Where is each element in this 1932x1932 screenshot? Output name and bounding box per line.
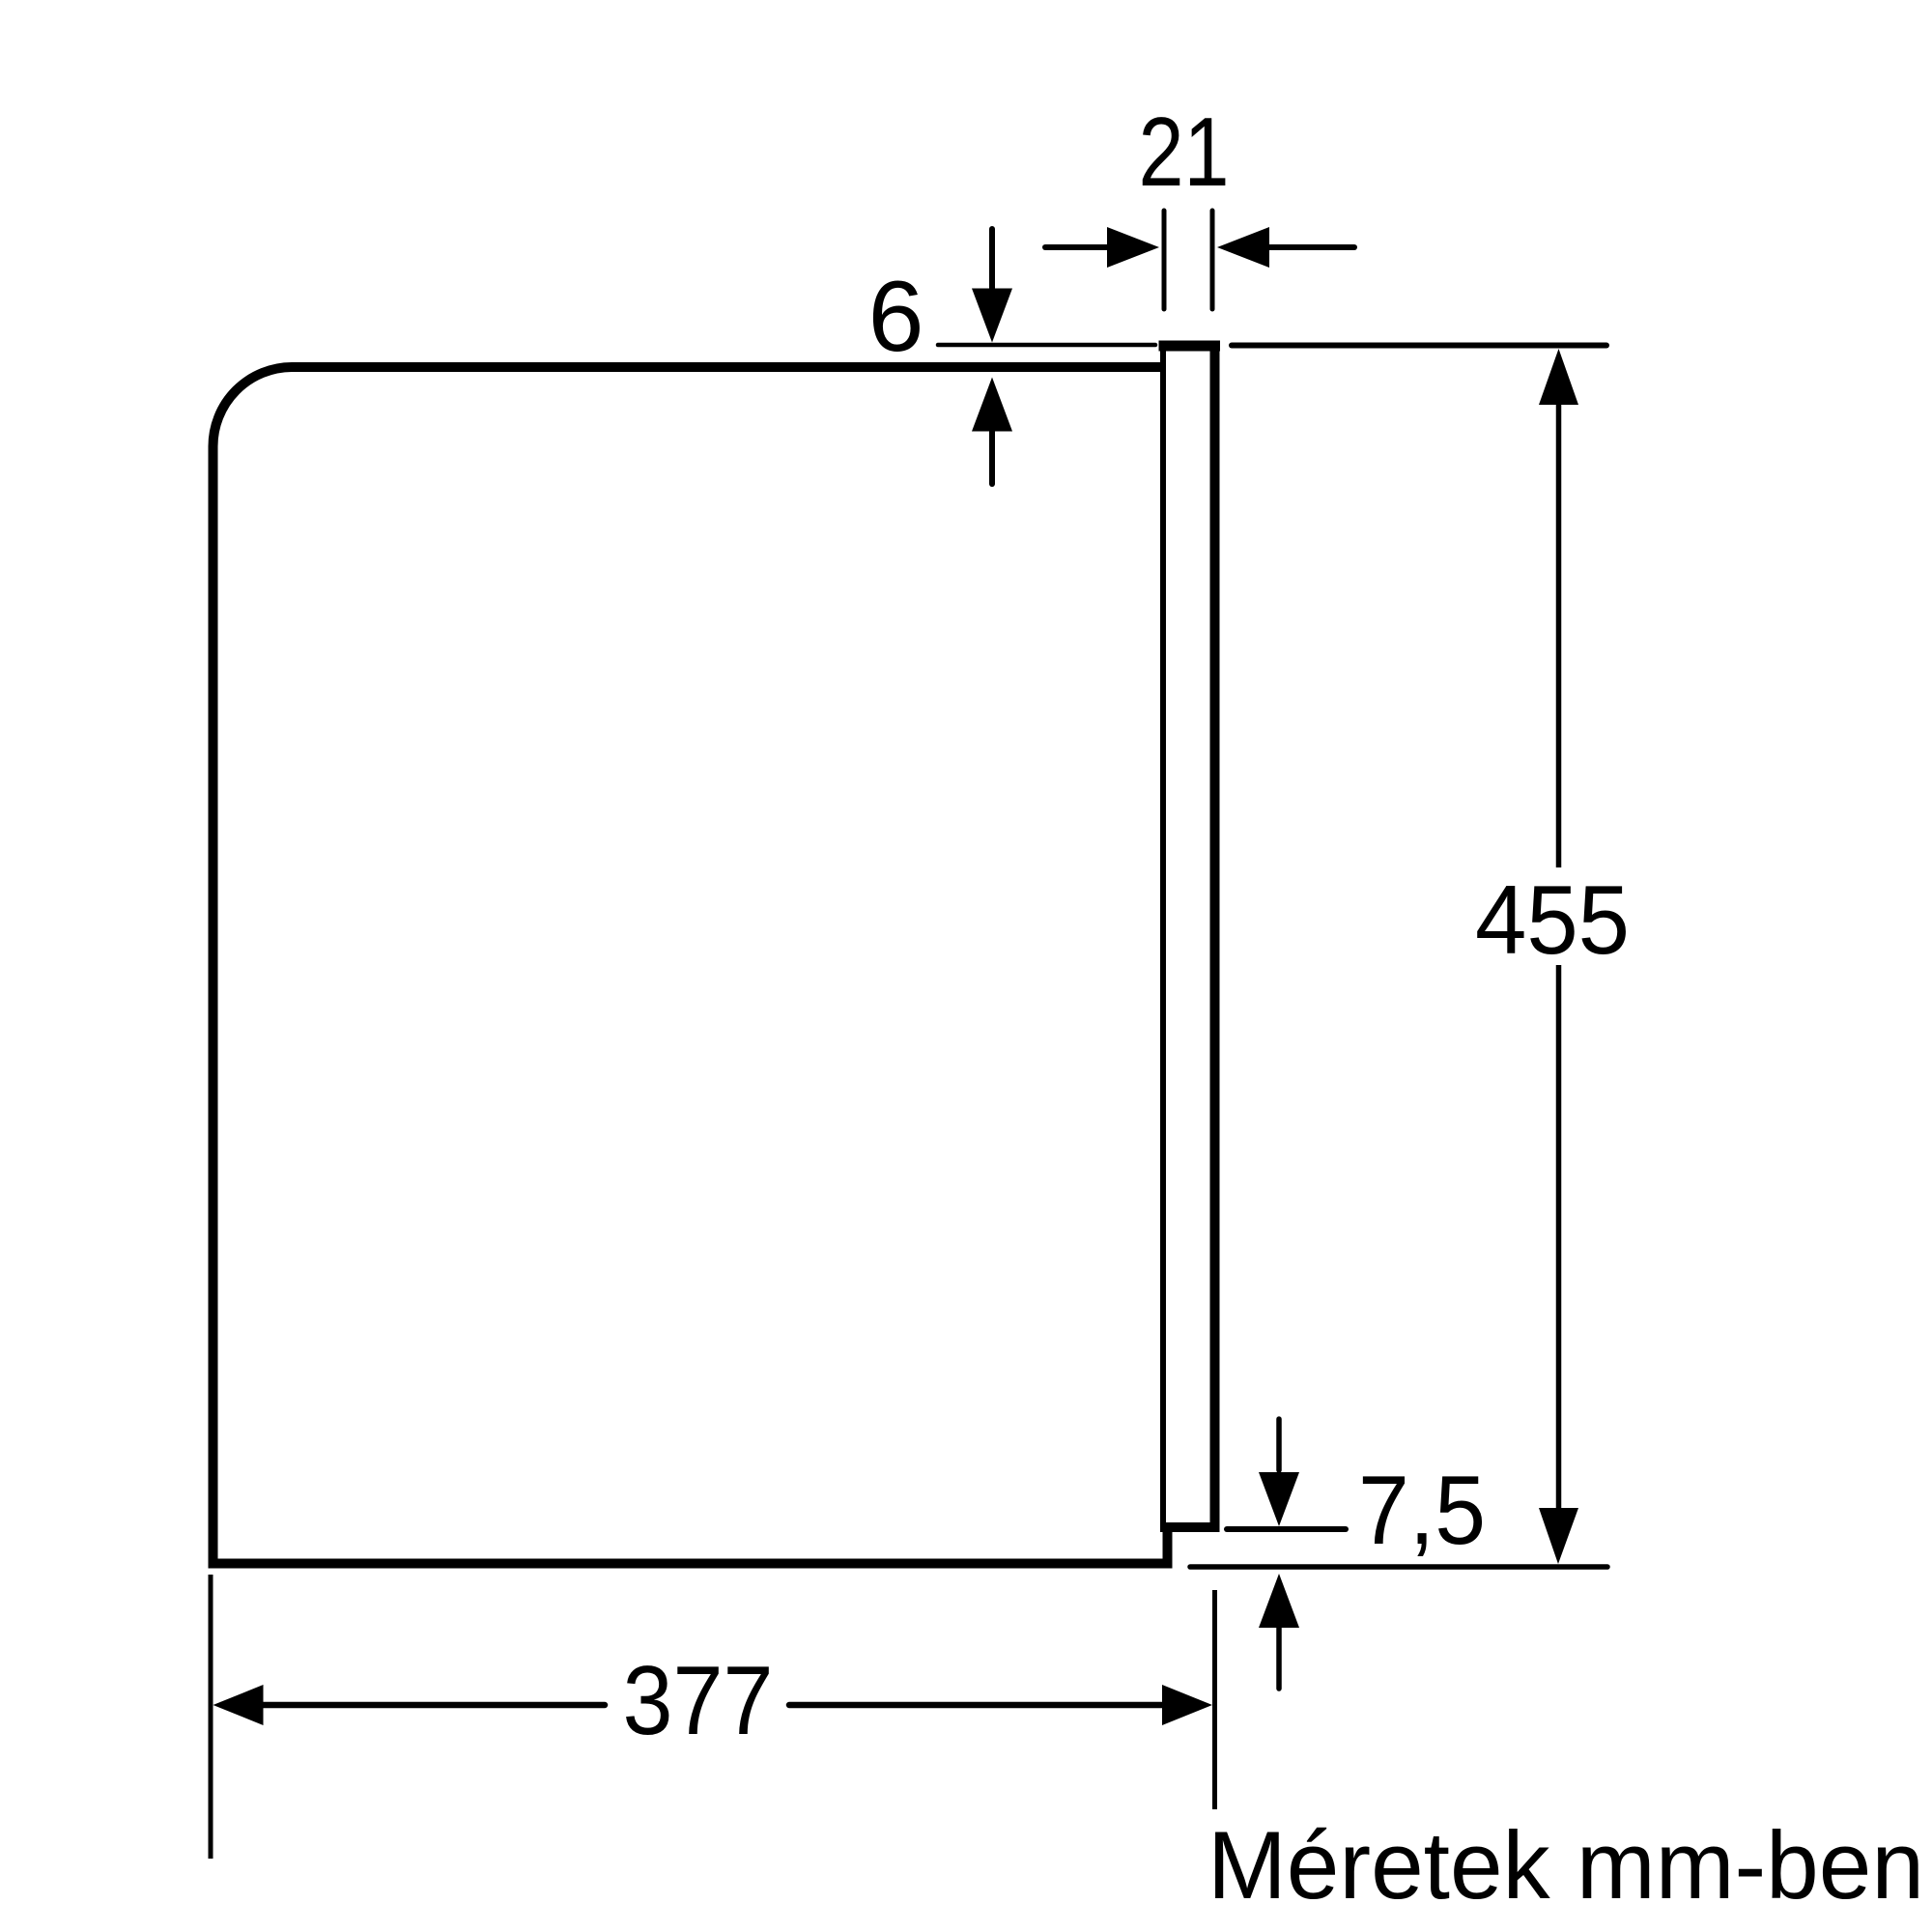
svg-text:21: 21 xyxy=(1139,99,1230,207)
svg-text:Méretek mm-ben: Méretek mm-ben xyxy=(1207,1811,1924,1918)
svg-text:7,5: 7,5 xyxy=(1358,1457,1486,1565)
svg-text:455: 455 xyxy=(1475,867,1630,975)
svg-text:6: 6 xyxy=(868,261,924,373)
svg-text:377: 377 xyxy=(623,1647,774,1755)
